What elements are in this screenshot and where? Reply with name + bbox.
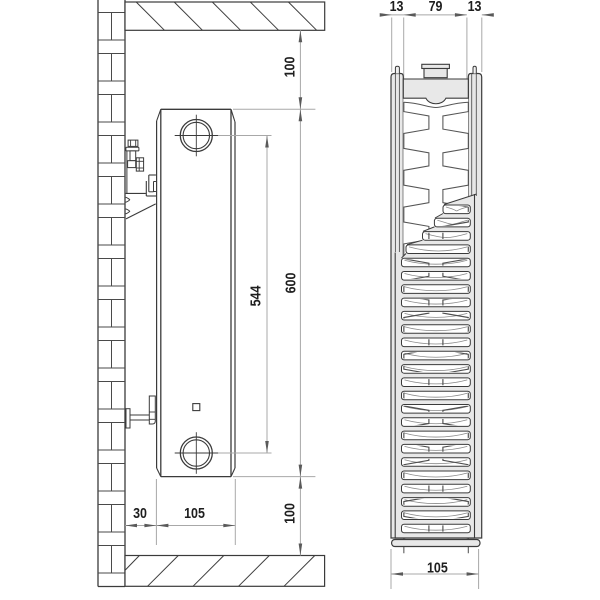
- svg-text:13: 13: [468, 0, 482, 14]
- svg-text:100: 100: [280, 56, 297, 77]
- svg-text:79: 79: [429, 0, 443, 14]
- svg-text:13: 13: [390, 0, 404, 14]
- svg-text:600: 600: [281, 272, 298, 293]
- svg-text:105: 105: [184, 504, 205, 521]
- svg-text:100: 100: [280, 503, 297, 524]
- svg-text:105: 105: [427, 558, 448, 575]
- svg-text:30: 30: [133, 504, 147, 521]
- svg-text:544: 544: [246, 285, 263, 306]
